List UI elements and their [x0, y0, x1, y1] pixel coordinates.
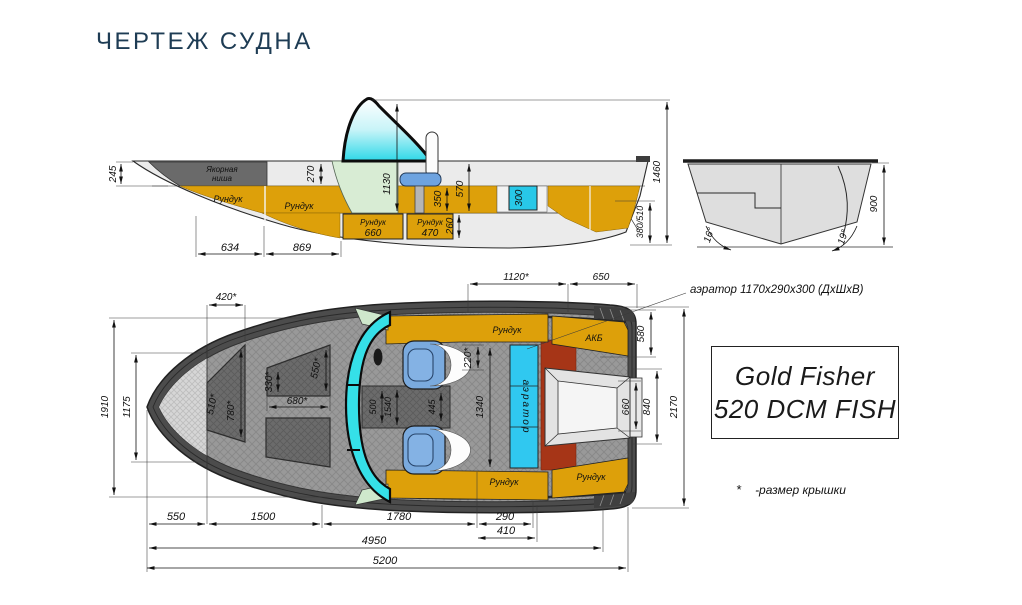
- stern-pad: [636, 156, 650, 162]
- transom-view: 16° 19° 900: [683, 161, 893, 251]
- dim-angle-19: 19°: [836, 228, 851, 246]
- battery-label: АКБ: [584, 333, 602, 343]
- dim-660: 660: [621, 398, 632, 415]
- dim-350: 350: [433, 190, 444, 207]
- dim-869: 869: [293, 242, 311, 254]
- dim-4950: 4950: [362, 535, 387, 547]
- dim-290: 290: [495, 511, 515, 523]
- dim-270: 270: [306, 165, 317, 183]
- model-name-line1: Gold Fisher: [735, 360, 875, 393]
- locker-470-label: Рундук: [417, 218, 444, 227]
- dim-1460: 1460: [652, 160, 663, 183]
- dim-1910: 1910: [100, 395, 111, 418]
- anchor-niche-label-2: ниша: [212, 174, 232, 183]
- dim-500: 500: [368, 399, 378, 414]
- dim-550: 550: [167, 511, 186, 523]
- dim-780: 780*: [226, 400, 237, 422]
- aerator-callout: аэратор 1170х290х300 (ДхШхВ): [690, 284, 863, 296]
- dim-580: 580: [636, 325, 647, 342]
- dim-330: 330*: [264, 371, 275, 393]
- dim-2170: 2170: [669, 395, 680, 419]
- footnote-text: -размер крышки: [755, 483, 846, 497]
- locker-470-size: 470: [422, 228, 439, 239]
- aerator-label: аэратор: [520, 380, 531, 435]
- model-name-line2: 520 DCM FISH: [714, 393, 896, 426]
- locker1-label: Рундук: [213, 194, 243, 204]
- seat-backrest-side: [426, 132, 438, 177]
- locker2-label: Рундук: [284, 201, 314, 211]
- model-plate: Gold Fisher 520 DCM FISH: [711, 346, 899, 439]
- dim-840: 840: [642, 398, 653, 415]
- dim-5200: 5200: [373, 555, 398, 567]
- dim-420: 420*: [216, 292, 238, 303]
- anchor-niche-label-1: Якорная: [205, 165, 238, 174]
- dim-260: 260: [445, 217, 456, 235]
- dim-680: 680*: [287, 396, 309, 407]
- dim-1780: 1780: [387, 511, 412, 523]
- dim-angle-16: 16°: [702, 226, 717, 244]
- boat-drawing-page: ЧЕРТЕЖ СУДНА: [0, 0, 1022, 605]
- locker-band-lower: [262, 213, 340, 238]
- dim-300: 300: [514, 189, 525, 206]
- dim-570: 570: [455, 180, 466, 197]
- footnote-marker: *: [736, 482, 741, 497]
- locker-stern-label: Рундук: [576, 472, 606, 482]
- dim-1340: 1340: [475, 395, 486, 418]
- dim-1130: 1130: [382, 173, 393, 195]
- dim-445: 445: [427, 399, 437, 415]
- dim-1540: 1540: [383, 397, 393, 417]
- technical-drawing: Якорная ниша Рундук Рундук Рундук 660 Ру…: [0, 0, 1022, 605]
- steering-wheel: [374, 349, 383, 366]
- dim-650: 650: [593, 272, 610, 283]
- footnote: *-размер крышки: [736, 482, 846, 497]
- windshield-side: [343, 98, 431, 161]
- locker-660-size: 660: [365, 228, 382, 239]
- seat-pedestal-side: [415, 186, 424, 213]
- dim-634: 634: [221, 242, 239, 254]
- dim-900: 900: [869, 195, 880, 212]
- dim-410: 410: [497, 525, 516, 537]
- top-view: аэратор Рундук АКБ Рундук Рундук: [100, 272, 689, 572]
- dim-1120: 1120*: [503, 272, 530, 283]
- locker-top-label: Рундук: [492, 325, 522, 335]
- locker-top-plan: [386, 314, 548, 344]
- locker-bottom-label: Рундук: [489, 477, 519, 487]
- locker-660-label: Рундук: [360, 218, 387, 227]
- dim-245: 245: [108, 165, 119, 183]
- dim-380-510: 380/510: [635, 206, 645, 239]
- side-view: Якорная ниша Рундук Рундук Рундук 660 Ру…: [108, 98, 672, 257]
- seat-cushion-side: [400, 173, 441, 186]
- dim-1500: 1500: [251, 511, 276, 523]
- locker-bottom-plan: [386, 470, 548, 500]
- dim-220: 220*: [463, 347, 474, 370]
- dim-1175: 1175: [122, 396, 133, 418]
